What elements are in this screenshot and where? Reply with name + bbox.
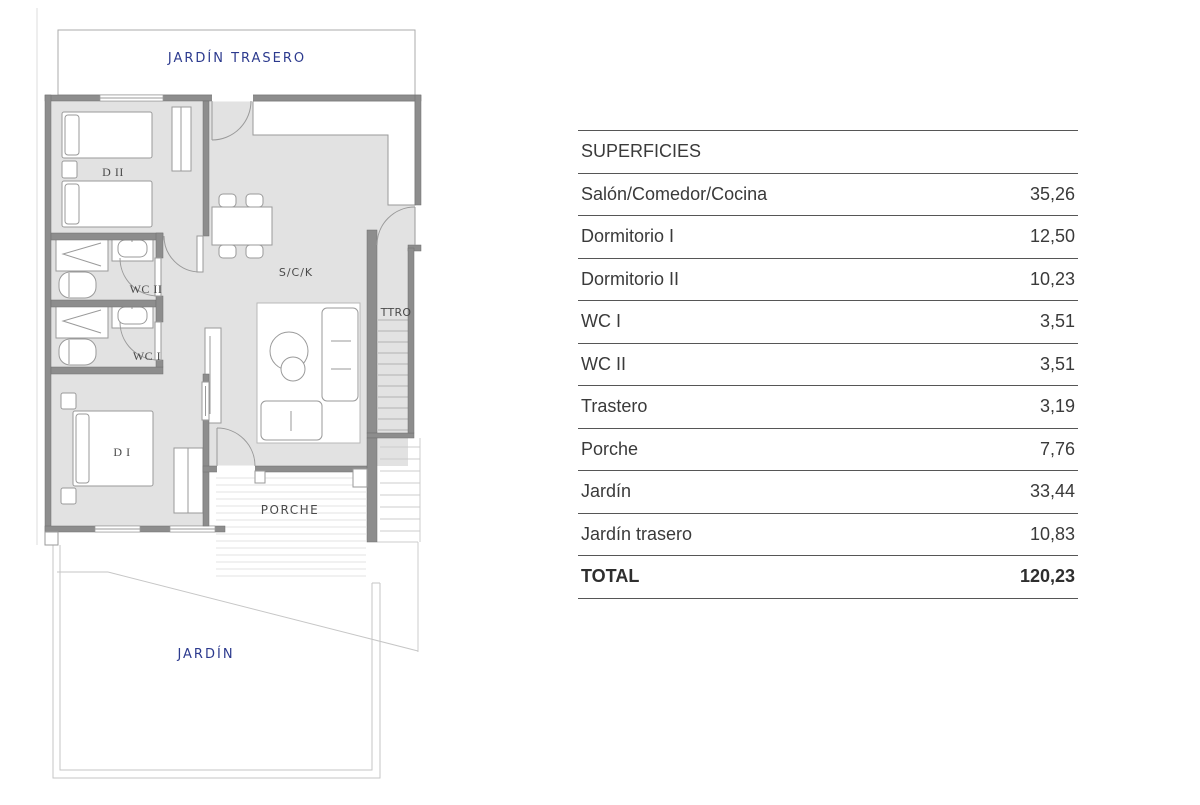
coffee-table-small bbox=[281, 357, 305, 381]
nightstand-d1-top bbox=[61, 393, 76, 409]
exterior-steps bbox=[377, 438, 420, 652]
table-row: Trastero 3,19 bbox=[578, 386, 1078, 429]
dining-table bbox=[212, 207, 272, 245]
label-ttro: TTRO bbox=[380, 306, 412, 319]
room-name: Porche bbox=[578, 439, 638, 460]
door-opening-porch bbox=[217, 466, 255, 473]
table-row: Dormitorio I 12,50 bbox=[578, 216, 1078, 259]
room-name: Jardín bbox=[578, 481, 631, 502]
chair bbox=[219, 245, 236, 258]
surfaces-table: SUPERFICIES Salón/Comedor/Cocina 35,26 D… bbox=[578, 130, 1078, 599]
total-label: TOTAL bbox=[578, 566, 639, 587]
room-area: 12,50 bbox=[1030, 226, 1078, 247]
toilet-wc1 bbox=[59, 339, 96, 365]
chair bbox=[246, 194, 263, 207]
room-name: WC I bbox=[578, 311, 621, 332]
porch-post-left bbox=[255, 471, 265, 483]
table-row: Jardín trasero 10,83 bbox=[578, 514, 1078, 557]
room-name: Dormitorio I bbox=[578, 226, 674, 247]
pillow-1 bbox=[65, 115, 79, 155]
total-value: 120,23 bbox=[1020, 566, 1078, 587]
room-area: 35,26 bbox=[1030, 184, 1078, 205]
pillow-2 bbox=[65, 184, 79, 224]
chair bbox=[246, 245, 263, 258]
toilet-wc2 bbox=[59, 272, 96, 298]
room-area: 7,76 bbox=[1040, 439, 1078, 460]
floor-plan-svg: JARDÍN TRASERO D II WC II WC I D I S/C/K… bbox=[0, 0, 530, 800]
sofa-right bbox=[322, 308, 358, 401]
room-name: WC II bbox=[578, 354, 626, 375]
label-wc1: WC I bbox=[133, 349, 161, 363]
porch-decking bbox=[216, 478, 366, 576]
room-area: 10,83 bbox=[1030, 524, 1078, 545]
door-leaf-d2 bbox=[197, 236, 203, 272]
label-sck: S/C/K bbox=[279, 266, 313, 279]
wall-stub bbox=[45, 532, 58, 545]
floor-trastero bbox=[378, 245, 408, 433]
table-row: Jardín 33,44 bbox=[578, 471, 1078, 514]
chair bbox=[219, 194, 236, 207]
label-d2: D II bbox=[102, 165, 124, 179]
table-row: Porche 7,76 bbox=[578, 429, 1078, 472]
room-area: 10,23 bbox=[1030, 269, 1078, 290]
table-row: WC I 3,51 bbox=[578, 301, 1078, 344]
nightstand-d2 bbox=[62, 161, 77, 178]
room-name: Salón/Comedor/Cocina bbox=[578, 184, 767, 205]
table-header-row: SUPERFICIES bbox=[578, 130, 1078, 174]
table-row: Dormitorio II 10,23 bbox=[578, 259, 1078, 302]
nightstand-d1-bottom bbox=[61, 488, 76, 504]
label-jardin-trasero: JARDÍN TRASERO bbox=[167, 50, 306, 66]
label-d1: D I bbox=[113, 445, 130, 459]
label-wc2: WC II bbox=[130, 282, 163, 296]
garden-fence bbox=[53, 545, 418, 778]
room-area: 33,44 bbox=[1030, 481, 1078, 502]
pillow-d1 bbox=[76, 414, 89, 483]
room-name: Trastero bbox=[578, 396, 647, 417]
label-jardin: JARDÍN bbox=[176, 646, 234, 662]
room-area: 3,51 bbox=[1040, 354, 1078, 375]
room-area: 3,19 bbox=[1040, 396, 1078, 417]
door-opening-garden bbox=[212, 95, 253, 102]
table-total-row: TOTAL 120,23 bbox=[578, 556, 1078, 599]
room-area: 3,51 bbox=[1040, 311, 1078, 332]
table-row: WC II 3,51 bbox=[578, 344, 1078, 387]
label-porche: PORCHE bbox=[261, 503, 319, 517]
floor-plan: JARDÍN TRASERO D II WC II WC I D I S/C/K… bbox=[0, 0, 530, 800]
room-name: Dormitorio II bbox=[578, 269, 679, 290]
porch-post-right bbox=[353, 469, 367, 487]
table-header: SUPERFICIES bbox=[578, 141, 701, 162]
room-name: Jardín trasero bbox=[578, 524, 692, 545]
table-row: Salón/Comedor/Cocina 35,26 bbox=[578, 174, 1078, 217]
